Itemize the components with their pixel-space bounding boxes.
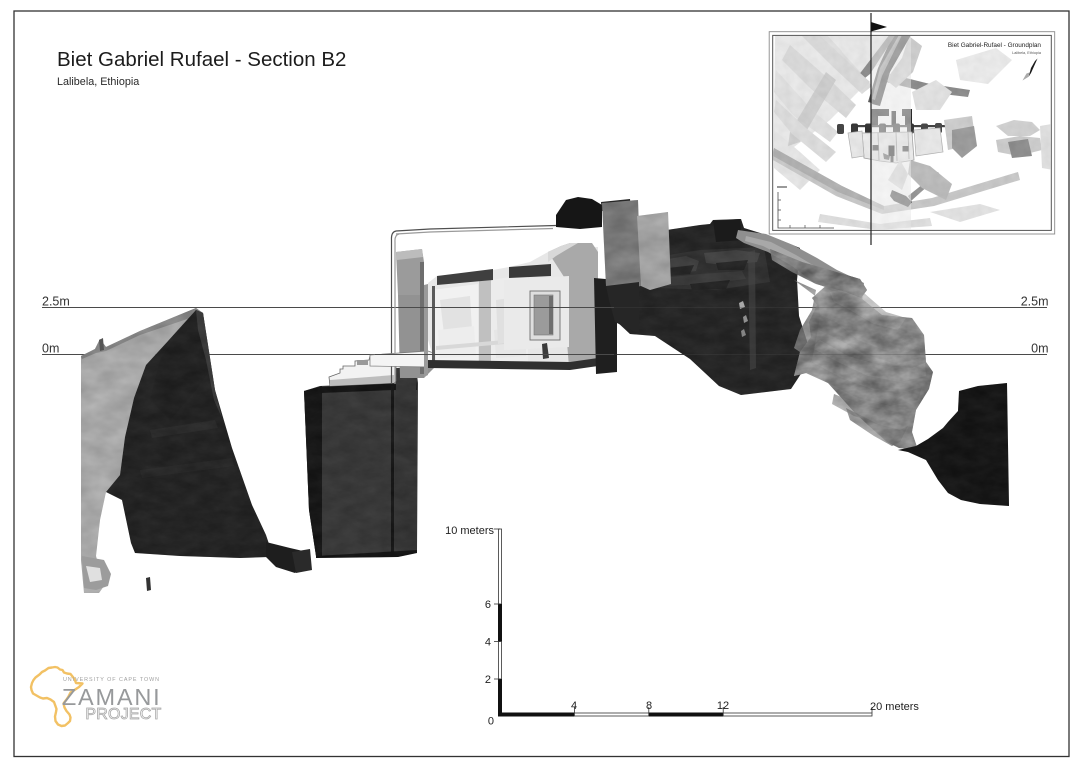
svg-text:0m: 0m: [42, 342, 59, 356]
svg-text:12: 12: [717, 700, 729, 712]
svg-text:Lalibela, Ethiopia: Lalibela, Ethiopia: [1012, 51, 1042, 55]
svg-text:Lalibela, Ethiopia: Lalibela, Ethiopia: [57, 76, 139, 88]
svg-text:6: 6: [485, 599, 491, 611]
svg-text:PROJECT: PROJECT: [85, 706, 161, 723]
svg-text:10 meters: 10 meters: [445, 525, 494, 537]
svg-text:4: 4: [485, 637, 491, 649]
svg-text:2.5m: 2.5m: [42, 295, 70, 309]
svg-text:4: 4: [571, 700, 577, 712]
svg-text:Biet Gabriel-Rufael - Groundpl: Biet Gabriel-Rufael - Groundplan: [948, 42, 1042, 49]
svg-text:20 meters: 20 meters: [870, 701, 919, 713]
svg-text:2.5m: 2.5m: [1021, 295, 1049, 309]
svg-text:Biet Gabriel Rufael - Section: Biet Gabriel Rufael - Section B2: [57, 48, 346, 71]
svg-text:0: 0: [488, 716, 494, 728]
svg-text:0m: 0m: [1031, 342, 1048, 356]
svg-text:8: 8: [646, 700, 652, 712]
svg-text:UNIVERSITY OF CAPE TOWN: UNIVERSITY OF CAPE TOWN: [63, 677, 160, 683]
svg-text:2: 2: [485, 674, 491, 686]
